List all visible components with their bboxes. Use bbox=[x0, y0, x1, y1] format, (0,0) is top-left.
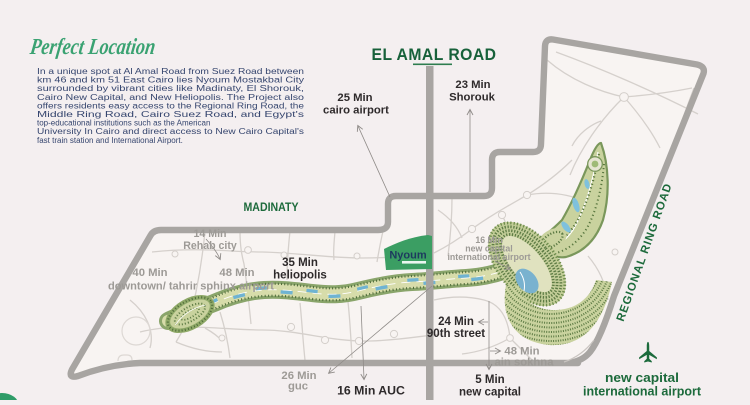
svg-text:ain sokhna: ain sokhna bbox=[494, 357, 554, 369]
svg-text:25 Min: 25 Min bbox=[337, 92, 372, 104]
svg-text:new capital: new capital bbox=[459, 387, 521, 399]
svg-text:Shorouk: Shorouk bbox=[449, 92, 496, 104]
svg-text:48 Min: 48 Min bbox=[219, 267, 254, 279]
svg-text:Rehab city: Rehab city bbox=[183, 240, 237, 252]
svg-text:Nyoum: Nyoum bbox=[389, 250, 427, 262]
svg-text:90th street: 90th street bbox=[427, 328, 485, 340]
svg-text:MADINATY: MADINATY bbox=[244, 200, 299, 214]
svg-text:EL AMAL ROAD: EL AMAL ROAD bbox=[372, 46, 497, 64]
svg-text:heliopolis: heliopolis bbox=[273, 270, 327, 282]
svg-text:international airport: international airport bbox=[447, 252, 530, 262]
svg-text:downtown/ tahrir sphinx airpor: downtown/ tahrir sphinx airport bbox=[108, 281, 274, 293]
svg-text:35 Min: 35 Min bbox=[282, 257, 318, 269]
svg-text:40 Min: 40 Min bbox=[132, 267, 167, 279]
svg-text:guc: guc bbox=[288, 381, 308, 393]
svg-text:fast train station and Interna: fast train station and International Air… bbox=[37, 136, 183, 145]
svg-text:international airport: international airport bbox=[583, 384, 702, 399]
svg-text:cairo airport: cairo airport bbox=[323, 105, 389, 117]
svg-text:Perfect Location: Perfect Location bbox=[28, 33, 157, 59]
svg-text:23 Min: 23 Min bbox=[455, 79, 490, 91]
svg-text:5 Min: 5 Min bbox=[475, 374, 504, 386]
svg-text:16 Min AUC: 16 Min AUC bbox=[337, 384, 405, 398]
svg-text:24 Min: 24 Min bbox=[438, 316, 474, 328]
svg-text:14 Min: 14 Min bbox=[194, 228, 227, 240]
